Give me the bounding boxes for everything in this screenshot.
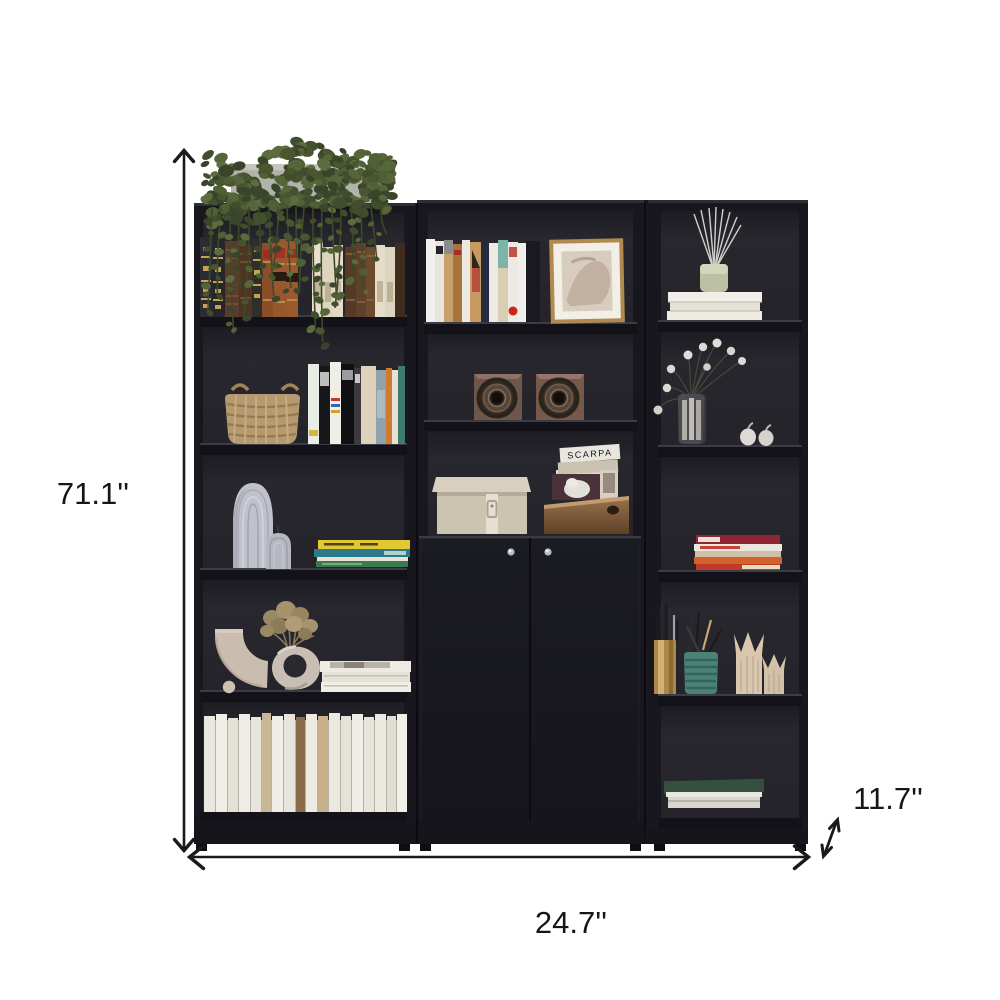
svg-text:71.1'': 71.1'' bbox=[57, 476, 129, 511]
svg-text:24.7'': 24.7'' bbox=[535, 905, 607, 940]
svg-text:11.7'': 11.7'' bbox=[853, 781, 923, 816]
